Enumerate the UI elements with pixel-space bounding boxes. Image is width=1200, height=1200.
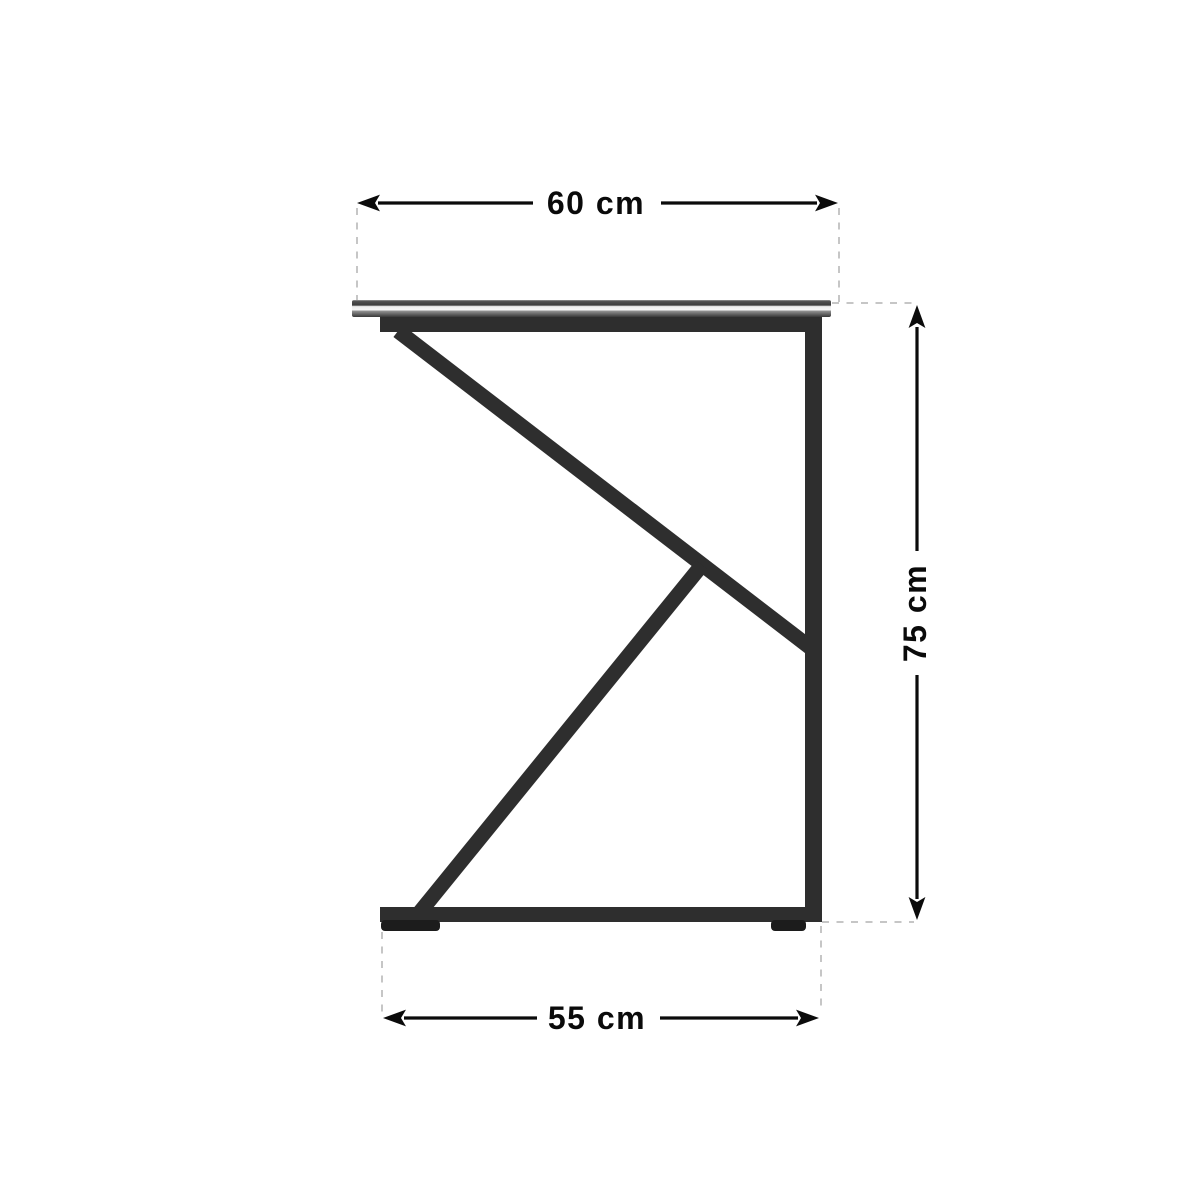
arrowhead-height-bottom [909, 897, 926, 920]
dimension-height-label: 75 cm [897, 564, 933, 662]
arrowhead-depth-left [383, 1010, 406, 1027]
arrowhead-height-top [909, 305, 926, 328]
dimension-width: 60 cm [357, 185, 838, 221]
tabletop [352, 300, 831, 317]
right-foot-pad [771, 920, 806, 931]
frame-brace-diagonal [420, 565, 702, 912]
left-foot-pad [381, 920, 440, 931]
arrowhead-width-right [815, 195, 838, 212]
dimension-height: 75 cm [897, 305, 933, 920]
frame-top-rail [380, 317, 822, 332]
diagram-svg: 60 cm 75 cm 55 cm [0, 0, 1200, 1200]
frame-main-diagonal [398, 331, 816, 652]
dimension-depth: 55 cm [383, 1000, 819, 1036]
dimension-width-label: 60 cm [547, 185, 645, 221]
dimension-depth-label: 55 cm [548, 1000, 646, 1036]
frame-right-leg [805, 317, 822, 922]
arrowhead-depth-right [796, 1010, 819, 1027]
arrowhead-width-left [357, 195, 380, 212]
frame-bottom-rail [380, 907, 820, 922]
table-frame [352, 300, 831, 931]
product-dimension-diagram: 60 cm 75 cm 55 cm [0, 0, 1200, 1200]
